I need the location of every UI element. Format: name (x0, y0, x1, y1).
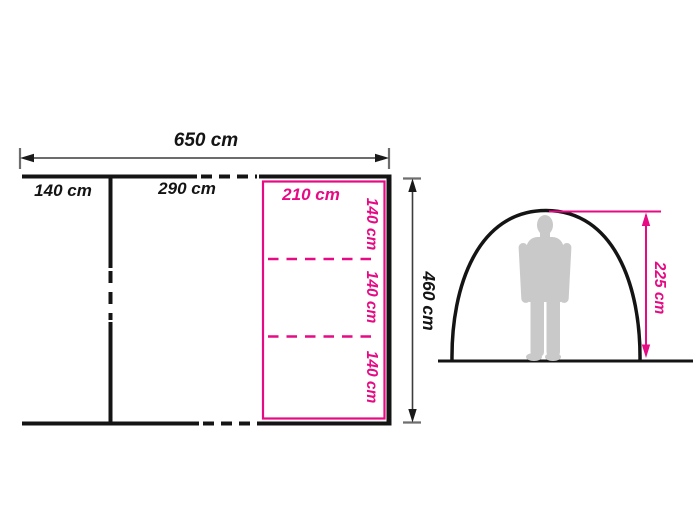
person-silhouette (518, 215, 571, 361)
total-depth-label: 460 cm (417, 259, 437, 343)
inner-width-label: 210 cm (266, 186, 356, 203)
left-section-label: 140 cm (20, 182, 106, 199)
inner-segment-label-1: 140 cm (361, 187, 379, 261)
middle-section-label: 290 cm (144, 180, 230, 197)
total-width-label: 650 cm (141, 131, 271, 150)
peak-height-label: 225 cm (649, 250, 667, 326)
inner-segment-label-2: 140 cm (361, 260, 379, 334)
dimension-650-line (20, 148, 389, 169)
inner-segment-label-3: 140 cm (361, 340, 379, 414)
tent-dimension-diagram: 650 cm 140 cm 290 cm 210 cm 140 cm 140 c… (0, 0, 700, 525)
diagram-canvas (0, 0, 700, 525)
